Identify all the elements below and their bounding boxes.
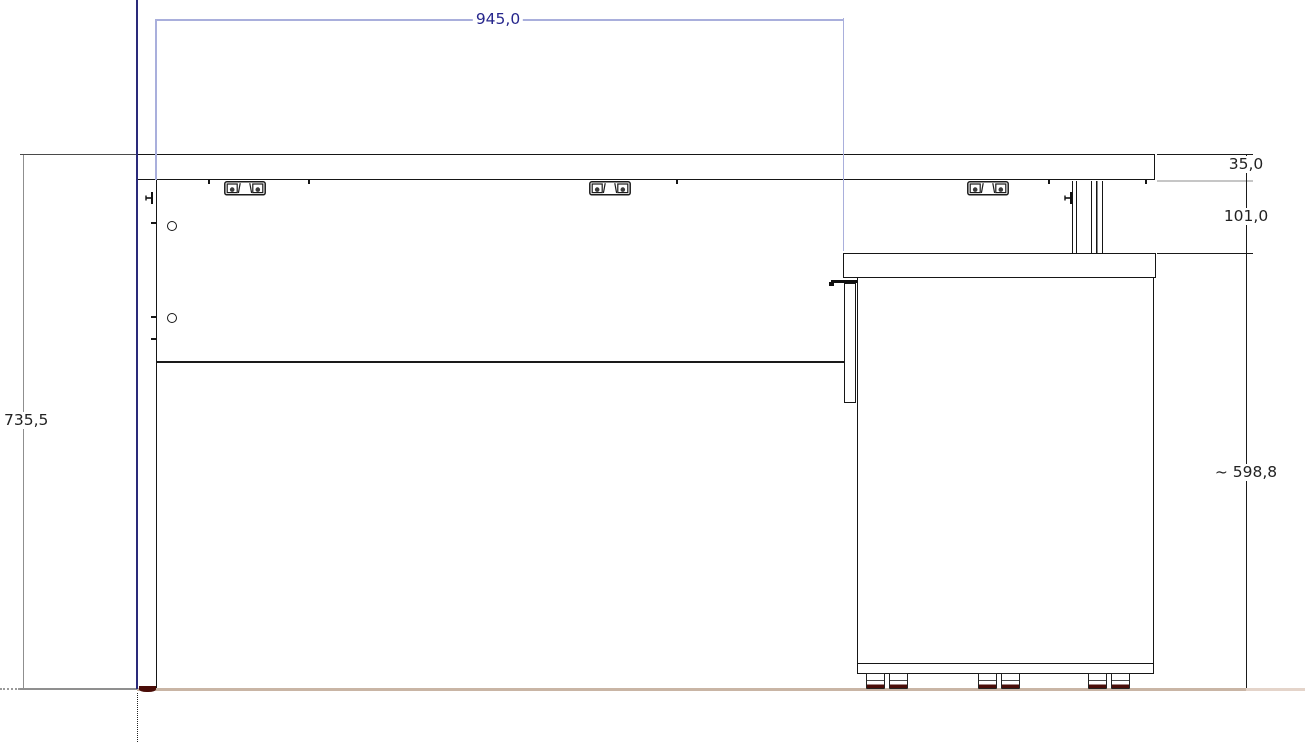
floor-line-right <box>1246 688 1305 691</box>
cabinet-foot <box>1088 673 1130 689</box>
fitting-bracket <box>589 181 631 196</box>
dim-total-height-ext-top <box>20 154 137 155</box>
dowel-tick <box>1048 180 1050 184</box>
leg-glide <box>139 686 156 692</box>
dowel-tick <box>208 180 210 184</box>
dim-total-height-label: 735,5 <box>1 412 51 429</box>
floor-line-left <box>20 688 137 690</box>
modesty-panel-edge <box>157 361 847 363</box>
dim-right-line <box>1246 154 1247 689</box>
leg-axis-dotted <box>137 693 138 742</box>
floor-line <box>137 688 1246 691</box>
dim-ext-cabinet-top <box>1157 253 1253 254</box>
leg-tick <box>151 316 156 318</box>
fitting-bracket <box>224 181 266 196</box>
cabinet-body <box>857 277 1154 664</box>
cabinet-top <box>843 253 1156 278</box>
foot-block <box>889 673 908 689</box>
reference-line <box>136 0 138 689</box>
left-leg-panel <box>137 180 157 688</box>
dim-top-thickness-label: 35,0 <box>1226 156 1267 173</box>
dim-ext-worktop-bottom <box>1157 180 1253 182</box>
desk-worktop <box>137 154 1155 180</box>
leg-tick <box>151 338 156 340</box>
support-post <box>1091 181 1103 253</box>
foot-block <box>1111 673 1130 689</box>
dim-top-width-ext-left <box>155 19 157 180</box>
floor-line-dotted <box>0 688 20 690</box>
dim-clearance-label: 101,0 <box>1221 208 1271 225</box>
cabinet-side-strip <box>844 283 856 403</box>
clamp-fitting <box>144 191 155 205</box>
cad-drawing-canvas: 945,0 735,5 <box>0 0 1305 742</box>
dim-cabinet-height-label: ~ 598,8 <box>1212 464 1280 481</box>
cam-hole <box>167 313 177 323</box>
fitting-bracket <box>967 181 1009 196</box>
foot-block <box>1088 673 1107 689</box>
dim-top-width-ext-right <box>843 18 845 251</box>
dowel-tick <box>308 180 310 184</box>
cam-hole <box>167 221 177 231</box>
dim-top-width-label: 945,0 <box>473 11 523 28</box>
clamp-fitting <box>1063 191 1074 205</box>
dowel-tick <box>676 180 678 184</box>
cabinet-foot <box>978 673 1020 689</box>
cabinet-lip-nub <box>829 282 834 286</box>
dowel-tick <box>1145 180 1147 184</box>
foot-block <box>1001 673 1020 689</box>
leg-tick <box>151 222 156 224</box>
foot-block <box>866 673 885 689</box>
cabinet-foot <box>866 673 908 689</box>
foot-block <box>978 673 997 689</box>
cabinet-lip-bracket <box>831 280 857 283</box>
